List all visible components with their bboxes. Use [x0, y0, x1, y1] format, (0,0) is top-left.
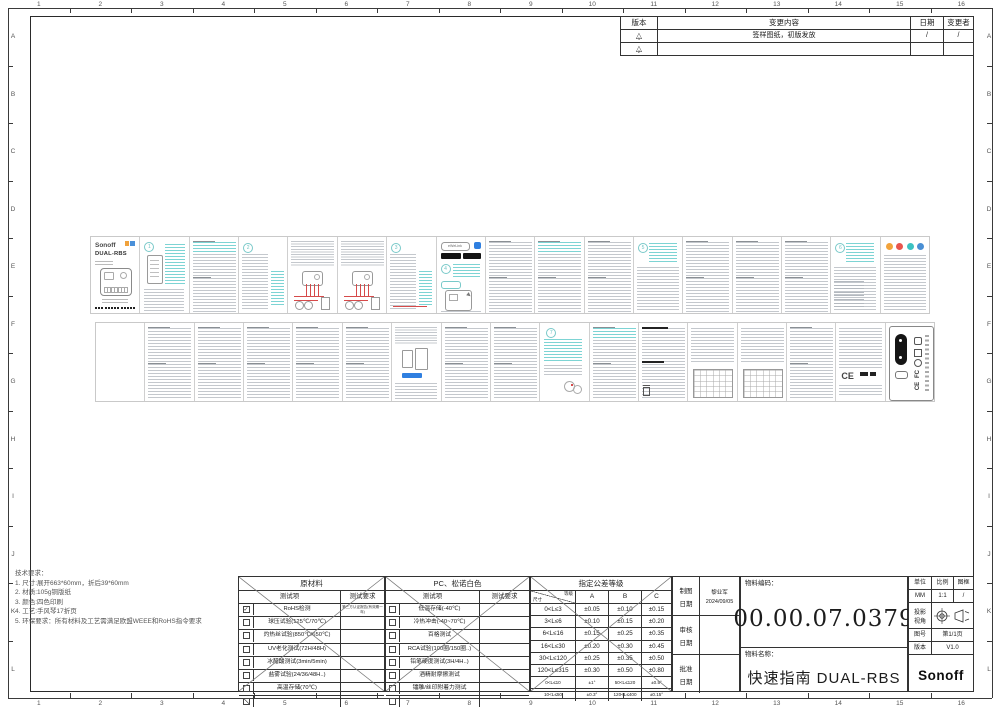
test-item: UV老化测试(72H/48H) — [253, 643, 340, 655]
heading-bar — [686, 241, 708, 242]
ruler-tick — [377, 8, 378, 13]
ruler-col-label: 8 — [439, 0, 501, 8]
tolerance-cell: ±0.10 — [608, 603, 641, 615]
test-requirement — [479, 616, 529, 629]
black-bar — [860, 372, 868, 376]
text-lines — [649, 243, 677, 263]
booklet-page-thumbnail — [288, 237, 337, 313]
heading-bar — [296, 363, 314, 364]
version-label: 版本 — [909, 642, 931, 655]
wire-line — [294, 296, 324, 297]
checkbox[interactable]: ✓ — [243, 606, 250, 613]
sheet-no-value: 第1/1页 — [931, 629, 973, 642]
tolerance-cell: ±0.3° — [575, 688, 608, 700]
ruler-tick — [70, 693, 71, 698]
projection-row: 投影 视角 — [909, 603, 973, 629]
checkbox-cell — [386, 603, 399, 615]
ruler-tick — [987, 296, 992, 297]
ruler-tick — [685, 8, 686, 13]
ruler-tick — [869, 693, 870, 698]
frame-label: 图框 — [953, 577, 973, 590]
step-number: 7 — [546, 328, 556, 338]
revision-date — [910, 42, 943, 55]
ruler-col-label: 1 — [8, 699, 70, 707]
fold-mark — [98, 307, 100, 309]
heading-bar — [494, 327, 516, 328]
booklet-page-thumbnail — [535, 237, 584, 313]
heading-bar — [489, 277, 507, 278]
tolerance-table: 指定公差等级等级尺寸ABC0<L≤3±0.05±0.10±0.153<L≤6±0… — [530, 576, 672, 692]
checkbox[interactable] — [243, 619, 250, 626]
sonoff-logo: Sonoff — [909, 655, 973, 695]
step-number: 6 — [835, 243, 845, 253]
label-dot — [899, 339, 902, 342]
socket-icon — [304, 301, 313, 310]
unit-label: 单位 — [909, 577, 931, 590]
test-item: 镭雕/丝印附着力测试 — [399, 682, 479, 694]
tolerance-cell: ±0.25 — [575, 652, 608, 664]
ruler-col-label: 12 — [685, 0, 747, 8]
fcc-mark: FC — [915, 370, 921, 378]
tolerance-cell: ±0.35 — [608, 652, 641, 664]
heading-bar — [538, 241, 560, 242]
wire-line — [360, 284, 361, 296]
ruler-tick — [8, 8, 13, 9]
ruler-tick — [131, 8, 132, 13]
ruler-tick — [8, 641, 13, 642]
heading-bar — [247, 363, 265, 364]
ecosystem-icon — [896, 243, 903, 250]
ruler-col-label: 3 — [131, 699, 193, 707]
ruler-tick — [8, 468, 13, 469]
ruler-tick — [987, 411, 992, 412]
part-code-label: 物料编码： — [741, 577, 907, 590]
label-device-photo — [895, 334, 907, 365]
text-lines — [150, 260, 159, 277]
device-outline — [147, 255, 163, 284]
page-strip-front: SonoffDUAL-RBS123eWeLink456 — [90, 236, 930, 314]
checkbox[interactable] — [243, 632, 250, 639]
checkbox-cell — [239, 656, 253, 668]
device-button — [314, 274, 320, 280]
booklet-page-thumbnail — [738, 323, 787, 401]
note-item: 2. 材质:105g铜版纸 — [15, 588, 202, 598]
ruler-tick — [685, 693, 686, 698]
step-number: 5 — [638, 243, 648, 253]
sheet-no-label: 图号 — [909, 629, 931, 642]
text-lines — [637, 267, 679, 311]
tolerance-cell: 0<L≤3 — [531, 603, 575, 615]
fold-mark — [101, 307, 103, 309]
tolerance-cell: 3<L≤6 — [531, 615, 575, 627]
text-lines — [291, 241, 334, 267]
checkbox-cell — [239, 629, 253, 641]
heading-bar — [593, 327, 615, 328]
checkbox[interactable] — [389, 606, 396, 613]
pairing-button — [441, 281, 461, 289]
ruler-tick — [987, 66, 992, 67]
ruler-col-label: 14 — [808, 699, 870, 707]
ruler-row-label: F — [982, 296, 996, 354]
checkbox[interactable] — [389, 619, 396, 626]
checkbox-cell — [386, 656, 399, 668]
scale-label: 比例 — [931, 577, 953, 590]
note-item: 1. 尺寸:展开663*60mm，折后39*60mm — [15, 579, 202, 589]
column-header: 测试要求 — [340, 591, 384, 603]
booklet-page-thumbnail — [486, 237, 535, 313]
heading-bar — [785, 277, 803, 278]
cover-chip-orange — [125, 241, 129, 246]
heading-bar — [445, 363, 463, 364]
heading-bar — [198, 363, 216, 364]
ruler-row-label: J — [982, 526, 996, 584]
tolerance-cell: ±0.10 — [575, 615, 608, 627]
heading-bar — [538, 277, 556, 278]
fold-mark — [117, 307, 119, 309]
ruler-row-label: H — [982, 411, 996, 469]
ruler-tick — [8, 238, 13, 239]
list-line — [834, 292, 864, 293]
ewelink-app-icon — [474, 242, 481, 249]
ruler-tick — [8, 181, 13, 182]
test-requirement — [340, 695, 384, 707]
booklet-page-thumbnail: 1 — [140, 237, 189, 313]
ruler-row-label: G — [6, 353, 20, 411]
ruler-col-label: 13 — [746, 0, 808, 8]
checkbox-cell — [239, 669, 253, 681]
tolerance-cell: ±0.35 — [641, 627, 671, 639]
drawing-sheet: 1122334455667788991010111112121313141415… — [0, 0, 1000, 707]
google-play-badge — [441, 253, 461, 259]
text-lines — [593, 328, 636, 339]
ruler-col-label: 2 — [70, 0, 132, 8]
wire-line — [364, 284, 365, 296]
text-lines — [441, 311, 481, 313]
booklet-page-thumbnail — [96, 323, 145, 401]
ruler-col-label: 3 — [131, 0, 193, 8]
label-text-lines — [925, 335, 929, 393]
booklet-page-thumbnail — [195, 323, 244, 401]
booklet-page-thumbnail: 3 — [387, 237, 436, 313]
ruler-col-label: 7 — [377, 0, 439, 8]
heading-bar — [494, 363, 512, 364]
test-requirement — [340, 629, 384, 642]
revision-header: 日期 — [910, 17, 943, 29]
unit-scale-frame-labels: 单位 比例 图框 — [909, 577, 973, 590]
note-item: 3. 颜色:四色印刷 — [15, 598, 202, 608]
fold-mark — [111, 307, 113, 309]
ruler-col-label: 5 — [254, 0, 316, 8]
fold-mark — [114, 307, 116, 309]
ruler-col-label: 15 — [869, 699, 931, 707]
checkbox[interactable] — [389, 672, 396, 679]
test-requirement — [340, 616, 384, 629]
heading-bar — [588, 277, 606, 278]
ruler-tick — [931, 8, 932, 13]
tolerance-cell: ±0.05 — [575, 603, 608, 615]
checkbox[interactable] — [243, 659, 250, 666]
ruler-col-label: 9 — [500, 0, 562, 8]
label-qr — [895, 371, 908, 379]
tolerance-cell: 30<L≤120 — [531, 652, 575, 664]
ruler-col-label: 15 — [869, 0, 931, 8]
test-item: 百格测试 — [399, 629, 479, 641]
tolerance-cell: ±0.80 — [641, 664, 671, 676]
checkbox-cell — [386, 629, 399, 641]
signature-label: 制图日期 — [673, 577, 700, 615]
booklet-page-thumbnail — [585, 237, 634, 313]
list-line — [834, 288, 864, 289]
tolerance-cell: 16<L≤30 — [531, 640, 575, 652]
checkbox[interactable] — [389, 659, 396, 666]
title-block-info: 单位 比例 图框 MM 1:1 / 投影 视角 — [908, 576, 974, 692]
ruler-row-label: G — [982, 353, 996, 411]
booklet-page-thumbnail — [881, 237, 929, 313]
device-illustration — [100, 268, 132, 296]
ruler-tick — [316, 8, 317, 13]
tolerance-cell: ±0.5° — [641, 676, 671, 688]
heading-bar — [346, 327, 368, 328]
ruler-tick — [987, 8, 992, 9]
ce-mark: CE — [915, 382, 921, 390]
unit-scale-frame-values: MM 1:1 / — [909, 590, 973, 603]
tolerance-cell: ±0.20 — [641, 615, 671, 627]
phone-outline — [415, 348, 428, 370]
list-line — [834, 285, 864, 286]
ruler-row-label: E — [982, 238, 996, 296]
list-line — [834, 299, 864, 300]
test-requirement: 第三方认证报告(有效期一年) — [340, 603, 384, 616]
ruler-tick — [193, 8, 194, 13]
booklet-page-thumbnail: SonoffDUAL-RBS — [91, 237, 140, 313]
revision-author — [943, 42, 973, 55]
checkbox[interactable] — [389, 698, 396, 705]
ruler-col-label: 11 — [623, 0, 685, 8]
revision-table: 版本变更内容日期变更者△1签样图纸，初版发放//△2 — [620, 16, 974, 56]
revision-header: 版本 — [621, 17, 657, 29]
ruler-tick — [439, 8, 440, 13]
ruler-tick — [746, 8, 747, 13]
heading-bar — [193, 277, 211, 278]
ruler-row-label: L — [6, 641, 20, 699]
scale-value: 1:1 — [931, 590, 953, 603]
weee-bin-icon — [643, 387, 650, 396]
booklet-page-thumbnail — [590, 323, 639, 401]
table-title: 指定公差等级 — [531, 577, 671, 591]
heading-bar — [642, 361, 664, 363]
ruler-tick — [8, 353, 13, 354]
wire-line — [306, 284, 307, 296]
wire-line — [314, 284, 315, 296]
ruler-tick — [8, 411, 13, 412]
text-lines — [193, 242, 236, 253]
tolerance-cell: 120<L≤315 — [531, 664, 575, 676]
ruler-row-label: L — [982, 641, 996, 699]
ecosystem-icon — [917, 243, 924, 250]
ruler-row-label: A — [982, 8, 996, 66]
ce-mark: CE — [841, 371, 854, 381]
signature-value — [700, 655, 739, 693]
ruler-tick — [869, 8, 870, 13]
ruler-col-label: 10 — [562, 0, 624, 8]
checkbox[interactable] — [389, 632, 396, 639]
text-lines — [102, 299, 128, 303]
column-header: 测试要求 — [479, 591, 529, 603]
ruler-tick — [987, 123, 992, 124]
ruler-col-label: 13 — [746, 699, 808, 707]
brand-logo: Sonoff — [95, 242, 116, 249]
heading-bar — [588, 241, 610, 242]
checkbox-cell — [239, 682, 253, 694]
technical-notes: 技术要求：1. 尺寸:展开663*60mm，折后39*60mm2. 材质:105… — [15, 569, 202, 626]
text-lines — [419, 271, 432, 305]
checkbox[interactable] — [243, 646, 250, 653]
revision-content: 签样图纸，初版发放 — [657, 29, 910, 42]
booklet-page-thumbnail — [442, 323, 491, 401]
text-lines — [165, 244, 185, 286]
revision-triangle: △2 — [621, 42, 657, 55]
version-value: V1.0 — [931, 642, 973, 655]
revision-content — [657, 42, 910, 55]
text-lines — [271, 271, 284, 305]
ruler-tick — [8, 526, 13, 527]
checkbox[interactable] — [389, 685, 396, 692]
tolerance-cell: ±0.25 — [608, 627, 641, 639]
test-item: 铅笔硬度测试(3H/4H..) — [399, 656, 479, 668]
tolerance-cell: ±1° — [575, 676, 608, 688]
unit-value: MM — [909, 590, 931, 603]
cert-icon — [914, 359, 922, 367]
note-item: 4. 工艺:手风琴17折页 — [15, 607, 202, 617]
tolerance-cell: ±0.45 — [641, 640, 671, 652]
heading-bar — [148, 327, 170, 328]
search-bar[interactable]: eWeLink — [441, 242, 470, 251]
device-detail — [104, 272, 114, 280]
checkbox[interactable] — [243, 672, 250, 679]
material-block: 物料编码： 00.00.07.0379 物料名称： 快速指南 DUAL-RBS — [740, 576, 908, 692]
step-number: 3 — [391, 243, 401, 253]
list-line — [834, 306, 864, 307]
heading-bar — [736, 241, 758, 242]
ruler-row-label: I — [982, 468, 996, 526]
list-line — [834, 295, 864, 296]
heading-bar — [346, 363, 364, 364]
tolerance-cell: ±0.15 — [575, 627, 608, 639]
ruler-col-label: 1 — [8, 0, 70, 8]
heading-bar — [593, 363, 611, 364]
ruler-tick — [8, 123, 13, 124]
checkbox[interactable] — [389, 646, 396, 653]
checkbox-cell — [239, 695, 253, 707]
sheet-number-row: 图号 第1/1页 — [909, 629, 973, 642]
ruler-tick — [70, 8, 71, 13]
tolerance-cell: 50<L≤120 — [608, 676, 641, 688]
grade-column-header: C — [641, 591, 671, 603]
size-grade-corner: 等级尺寸 — [531, 591, 575, 603]
revision-header: 变更内容 — [657, 17, 910, 29]
socket-icon — [354, 301, 363, 310]
test-item: 盐雾试验(24/36/48H..) — [253, 669, 340, 681]
ruler-tick — [987, 641, 992, 642]
test-requirement — [479, 656, 529, 669]
booklet-page-thumbnail — [145, 323, 194, 401]
booklet-page-thumbnail — [338, 237, 387, 313]
component-icon — [321, 297, 330, 310]
phone-outline — [402, 350, 413, 368]
checkbox-cell: ✓ — [239, 603, 253, 615]
tolerance-cell: 6<L≤16 — [531, 627, 575, 639]
text-lines — [341, 241, 384, 267]
heading-bar — [642, 327, 668, 329]
text-lines — [144, 289, 184, 311]
checkbox-cell — [386, 616, 399, 628]
frame-value: / — [953, 590, 973, 603]
test-item: RoHS检测 — [253, 603, 340, 615]
heading-bar — [247, 327, 269, 328]
tolerance-cell: ±0.50 — [608, 664, 641, 676]
wire-line — [393, 306, 427, 307]
test-item: 灼热丝试验(850℃/650℃) — [253, 629, 340, 641]
step-number: 2 — [243, 243, 253, 253]
ruler-tick — [8, 583, 13, 584]
heading-bar — [148, 363, 166, 364]
sketch-circle — [573, 385, 582, 394]
fold-mark — [130, 307, 132, 309]
booklet-page-thumbnail — [244, 323, 293, 401]
ruler-row-label: I — [6, 468, 20, 526]
black-bar — [870, 372, 876, 376]
app-store-badge — [463, 253, 481, 259]
text-lines — [544, 339, 582, 361]
table-title: 原材料 — [239, 577, 384, 591]
text-lines — [538, 242, 581, 253]
mini-table — [743, 369, 783, 398]
test-item: 低温存储(-40℃) — [399, 603, 479, 615]
ruler-row-label: F — [6, 296, 20, 354]
wire-line — [368, 284, 369, 296]
test-requirement — [479, 629, 529, 642]
booklet-page-thumbnail: CE — [836, 323, 885, 401]
text-lines — [846, 243, 874, 263]
booklet-page-thumbnail — [392, 323, 441, 401]
checkbox[interactable] — [243, 685, 250, 692]
ruler-row-label: A — [6, 8, 20, 66]
component-icon — [371, 297, 380, 310]
ruler-tick — [131, 693, 132, 698]
checkbox[interactable] — [243, 698, 250, 705]
text-lines — [453, 264, 480, 278]
booklet-page-thumbnail: 6 — [831, 237, 880, 313]
booklet-page-thumbnail — [293, 323, 342, 401]
ruler-tick — [562, 8, 563, 13]
mini-table — [693, 369, 733, 398]
booklet-page-thumbnail: 5 — [634, 237, 683, 313]
booklet-page-thumbnail: 7 — [540, 323, 589, 401]
device-detail — [449, 294, 458, 301]
tolerance-cell: 0<L≤10 — [531, 676, 575, 688]
weee-bin-icon — [643, 385, 650, 386]
test-requirement — [340, 656, 384, 669]
ruler-row-label: C — [6, 123, 20, 181]
text-lines — [544, 365, 582, 377]
ruler-tick — [8, 296, 13, 297]
checkbox-cell — [239, 616, 253, 628]
checkbox-cell — [386, 643, 399, 655]
ruler-row-label: B — [6, 66, 20, 124]
signature-label: 审核日期 — [673, 616, 700, 654]
heading-bar — [686, 277, 704, 278]
test-requirement — [340, 669, 384, 682]
